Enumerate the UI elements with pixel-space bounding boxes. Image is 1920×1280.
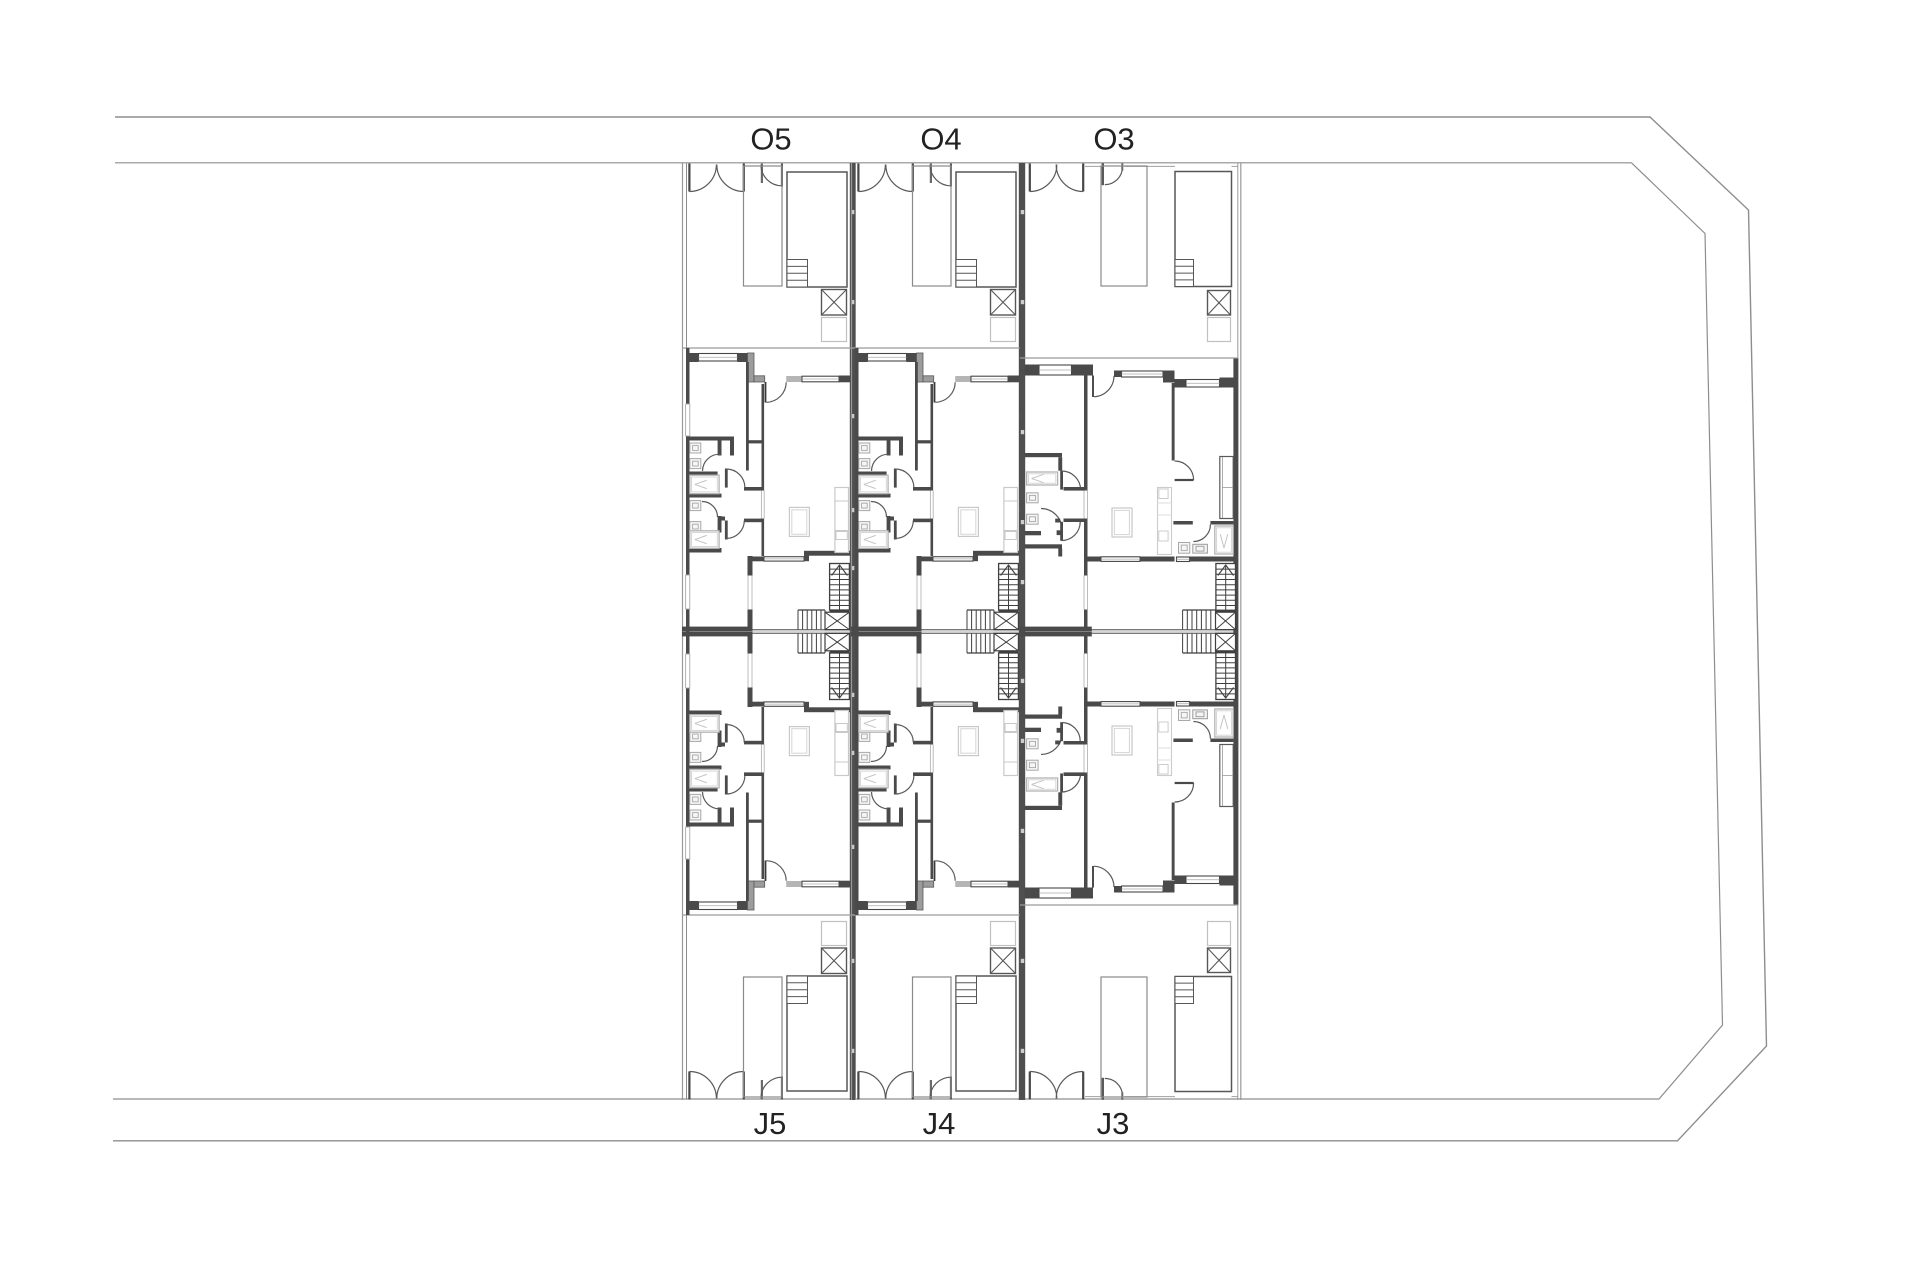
- svg-text:J5: J5: [754, 1106, 787, 1141]
- svg-text:J4: J4: [923, 1106, 956, 1141]
- svg-text:O4: O4: [920, 122, 961, 157]
- svg-text:J3: J3: [1097, 1106, 1130, 1141]
- svg-text:O5: O5: [750, 122, 791, 157]
- svg-text:O3: O3: [1093, 122, 1134, 157]
